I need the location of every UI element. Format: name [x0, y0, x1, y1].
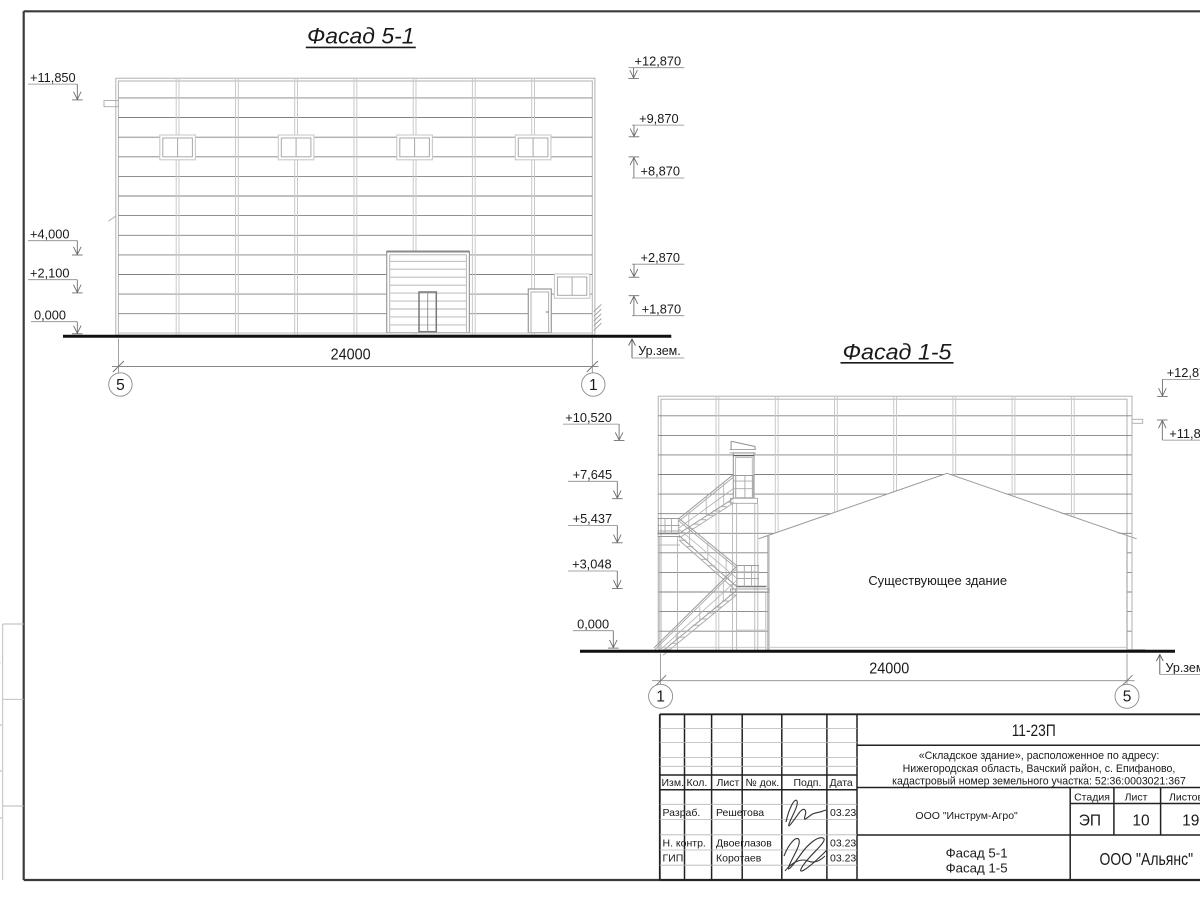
svg-text:Фасад 5-1: Фасад 5-1: [307, 24, 415, 49]
svg-text:24000: 24000: [331, 346, 371, 363]
svg-text:Разраб.: Разраб.: [663, 807, 701, 819]
svg-text:Изм.: Изм.: [662, 777, 685, 789]
svg-text:10: 10: [1132, 812, 1150, 829]
svg-text:+9,870: +9,870: [639, 111, 679, 126]
svg-text:+12,870: +12,870: [635, 53, 682, 68]
svg-text:+3,048: +3,048: [572, 557, 612, 572]
svg-text:Н. контр.: Н. контр.: [663, 838, 706, 850]
svg-text:«Складское здание», расположен: «Складское здание», расположенное по адр…: [919, 750, 1160, 762]
svg-text:Дата: Дата: [830, 777, 853, 789]
svg-text:03.23: 03.23: [830, 853, 856, 865]
svg-text:Подп.: Подп.: [794, 777, 822, 789]
svg-text:Лист: Лист: [1125, 791, 1148, 803]
svg-text:Фасад 1-5: Фасад 1-5: [946, 861, 1008, 876]
svg-text:1: 1: [589, 377, 598, 394]
svg-text:+5,437: +5,437: [573, 511, 613, 526]
svg-text:Ур.зем.: Ур.зем.: [638, 344, 680, 358]
svg-text:1: 1: [656, 689, 665, 706]
svg-text:ООО "Инструм-Агро": ООО "Инструм-Агро": [915, 810, 1018, 822]
svg-text:5: 5: [116, 377, 125, 394]
svg-text:Листов: Листов: [1169, 791, 1200, 803]
svg-text:кадастровый номер земельного у: кадастровый номер земельного участка: 52…: [892, 775, 1186, 787]
svg-text:Коротаев: Коротаев: [716, 853, 762, 865]
svg-text:+4,000: +4,000: [30, 226, 70, 241]
svg-text:0,000: 0,000: [577, 616, 609, 631]
svg-text:+7,645: +7,645: [573, 467, 613, 482]
svg-text:№ док.: № док.: [746, 777, 780, 789]
svg-text:+10,520: +10,520: [565, 410, 612, 425]
svg-text:5: 5: [1123, 689, 1132, 706]
svg-text:0,000: 0,000: [34, 307, 66, 322]
svg-text:+12,870: +12,870: [1167, 365, 1200, 380]
svg-text:Нижегородская область, Вачский: Нижегородская область, Вачский район, с.…: [903, 763, 1176, 775]
svg-text:ЭП: ЭП: [1079, 812, 1101, 829]
svg-text:Двоеглазов: Двоеглазов: [716, 838, 772, 850]
svg-text:Ур.зем.: Ур.зем.: [1166, 661, 1200, 675]
svg-text:+1,870: +1,870: [642, 301, 682, 316]
svg-text:03.23: 03.23: [830, 807, 856, 819]
svg-text:+8,870: +8,870: [641, 164, 681, 179]
svg-text:19: 19: [1182, 812, 1199, 829]
svg-text:24000: 24000: [869, 661, 909, 678]
svg-text:+11,850: +11,850: [30, 70, 76, 85]
svg-text:03.23: 03.23: [830, 838, 856, 850]
svg-text:Решетова: Решетова: [716, 807, 764, 819]
svg-text:Стадия: Стадия: [1074, 791, 1110, 803]
svg-text:+11,850: +11,850: [1169, 426, 1200, 441]
svg-text:11-23П: 11-23П: [1012, 721, 1056, 740]
svg-text:ООО "Альянс": ООО "Альянс": [1100, 849, 1194, 869]
svg-text:Лист: Лист: [717, 777, 740, 789]
svg-text:ГИП: ГИП: [663, 853, 684, 865]
svg-text:Фасад 5-1: Фасад 5-1: [946, 846, 1008, 861]
svg-text:Кол.: Кол.: [687, 777, 708, 789]
svg-text:Фасад 1-5: Фасад 1-5: [843, 340, 953, 365]
svg-text:Существующее здание: Существующее здание: [868, 573, 1007, 588]
svg-text:+2,870: +2,870: [641, 250, 681, 265]
svg-text:+2,100: +2,100: [30, 265, 70, 280]
